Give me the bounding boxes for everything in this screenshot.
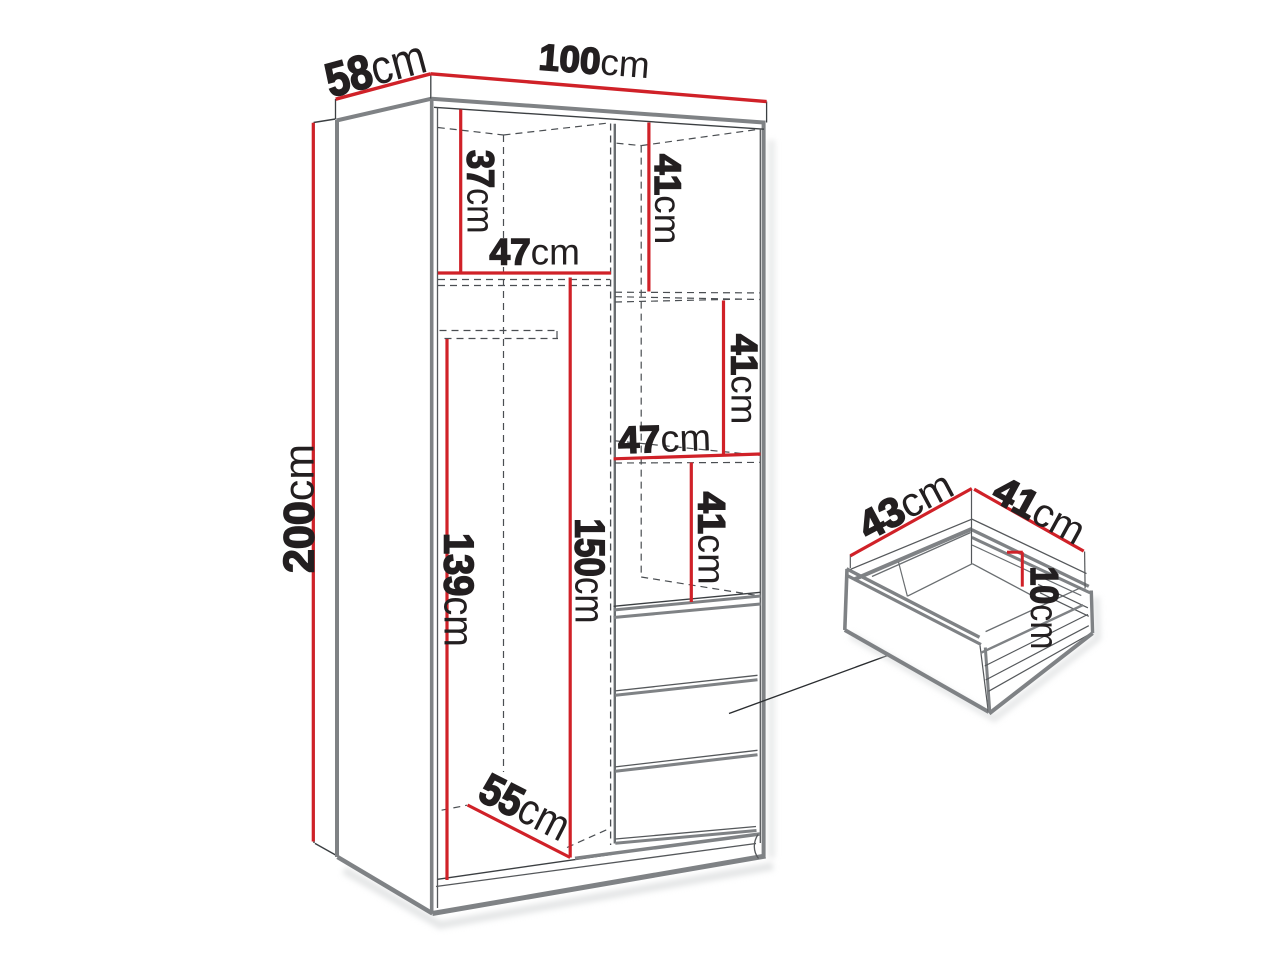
svg-text:139cm: 139cm — [435, 533, 481, 647]
svg-text:10cm: 10cm — [1022, 567, 1066, 650]
svg-text:100cm: 100cm — [537, 37, 651, 87]
svg-text:41cm: 41cm — [647, 154, 688, 244]
svg-text:41cm: 41cm — [724, 334, 765, 424]
svg-text:47cm: 47cm — [490, 232, 580, 273]
svg-text:47cm: 47cm — [617, 417, 711, 462]
svg-text:200cm: 200cm — [276, 444, 324, 573]
svg-text:150cm: 150cm — [566, 519, 613, 624]
svg-text:41cm: 41cm — [690, 492, 732, 585]
svg-text:37cm: 37cm — [459, 150, 502, 234]
